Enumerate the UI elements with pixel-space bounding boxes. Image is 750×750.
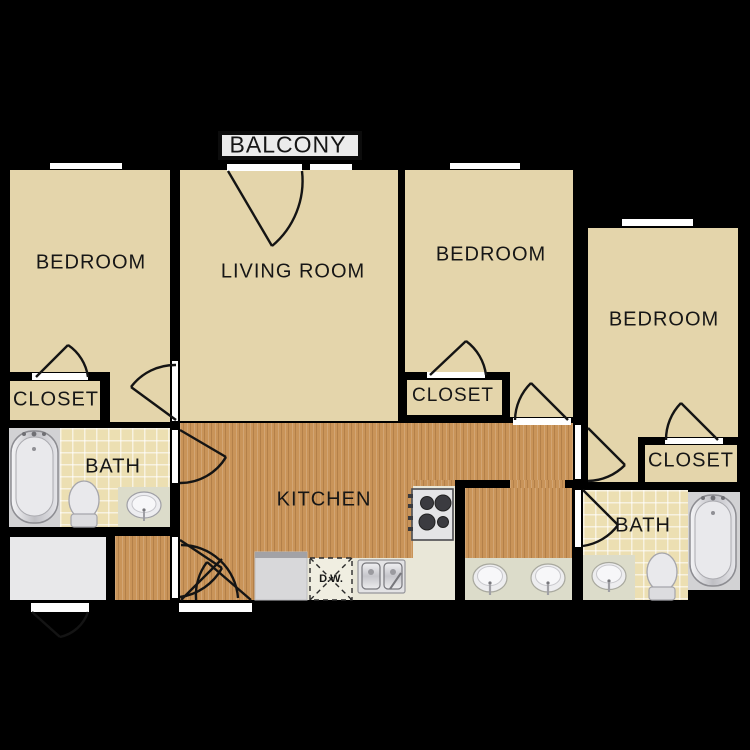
closet-left-label: CLOSET (13, 389, 99, 412)
hall-opening-floor (510, 480, 565, 488)
kitchen-floor-main (180, 423, 573, 480)
living-room-label: LIVING ROOM (221, 261, 365, 284)
bedroom-middle-window (450, 163, 520, 169)
living-room-floor (180, 170, 398, 421)
closet-middle-opening (427, 372, 485, 378)
closet-left-opening (32, 373, 88, 380)
closet-right-opening (665, 438, 723, 444)
pantry-floor (115, 536, 170, 600)
bedroom-middle-nook-floor (510, 372, 573, 417)
bedroom-left-door-opening (172, 361, 178, 421)
bath-right-door-opening (575, 490, 581, 547)
bedroom-right-label: BEDROOM (609, 309, 719, 332)
bedroom-right-door-opening (575, 425, 581, 479)
balcony-label: BALCONY (230, 132, 347, 159)
kitchen-counter-right (413, 486, 455, 600)
bedroom-right-nook-floor (588, 437, 638, 482)
patio-door (32, 612, 88, 637)
bedroom-middle-floor (405, 170, 573, 372)
bath-right-tub-zone (688, 492, 740, 590)
bath-right-sink-counter (583, 555, 635, 600)
bedroom-left-label: BEDROOM (36, 252, 146, 275)
bedroom-middle-label: BEDROOM (436, 244, 546, 267)
kitchen-floor-bottom (180, 558, 255, 600)
entry-door-opening (179, 603, 252, 612)
closet-right-label: CLOSET (648, 450, 734, 473)
bath-left-door-opening (172, 430, 178, 483)
bedroom-right-floor (588, 228, 738, 437)
bedroom-left-window (50, 163, 122, 169)
living-room-window (310, 164, 352, 170)
bath-left-sink-counter (118, 487, 170, 527)
bedroom-left-nook-floor (110, 372, 170, 422)
patio-room-floor (10, 537, 106, 600)
vanity-counter (465, 558, 572, 600)
kitchen-label: KITCHEN (277, 489, 372, 512)
bath-right-label: BATH (615, 515, 671, 538)
bath-left-tub-zone (9, 428, 60, 527)
floor-plan: BALCONY BEDROOM LIVING ROOM BEDROOM BEDR… (0, 0, 750, 750)
balcony-door-opening (227, 164, 302, 171)
pantry-door-opening (172, 537, 178, 598)
bedroom-middle-door-opening (513, 418, 571, 425)
bedroom-right-window (622, 219, 693, 226)
bath-left-label: BATH (85, 456, 141, 479)
patio-door-opening (31, 603, 89, 612)
vanity-hall-floor (465, 488, 572, 558)
closet-middle-label: CLOSET (412, 385, 494, 407)
dishwasher-label: D.W. (319, 573, 343, 585)
